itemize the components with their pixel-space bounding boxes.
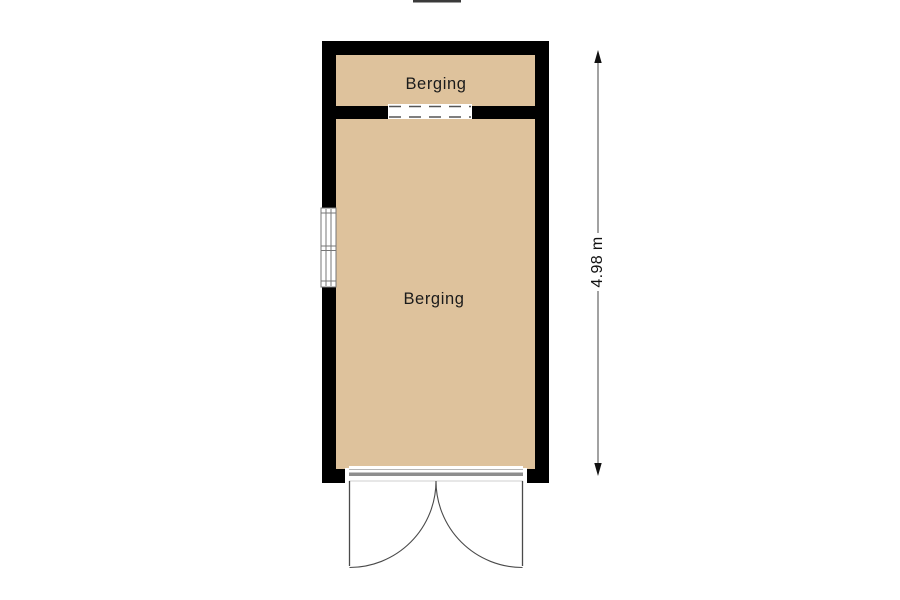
- room-label-berging-top: Berging: [405, 75, 466, 93]
- room-label-berging-main: Berging: [403, 290, 464, 308]
- window-symbol: [321, 208, 336, 287]
- interior-wall-opening: [388, 104, 472, 119]
- door-jamb-notch-right: [523, 468, 528, 483]
- floorplan-canvas: Berging Berging 4.98 m: [0, 0, 900, 600]
- floorplan-drawing: Berging Berging 4.98 m: [0, 0, 900, 600]
- threshold-band: [349, 473, 523, 477]
- door-jamb-notch-left: [345, 468, 350, 483]
- cropped-top-artifact: [413, 0, 461, 3]
- dimension-label: 4.98 m: [589, 236, 606, 287]
- window-frame: [321, 208, 336, 287]
